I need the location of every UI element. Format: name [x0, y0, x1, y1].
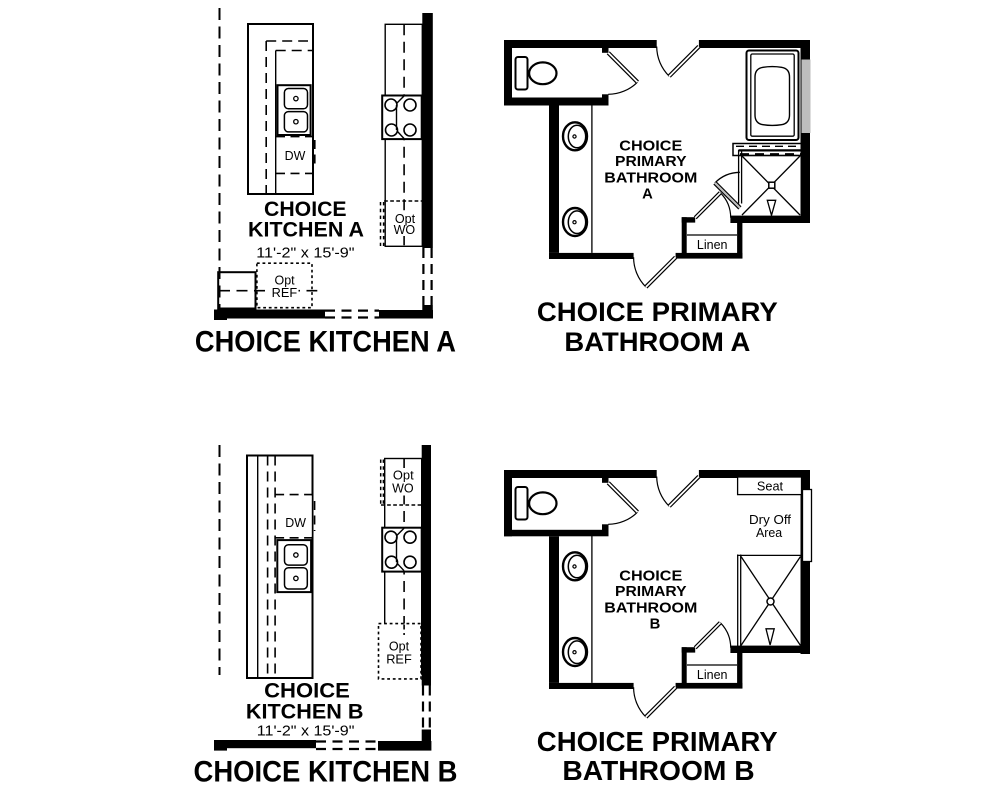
svg-text:CHOICE: CHOICE [619, 139, 682, 155]
svg-text:Seat: Seat [757, 478, 784, 493]
svg-text:DW: DW [285, 148, 306, 163]
svg-text:BATHROOM: BATHROOM [604, 601, 697, 617]
svg-text:A: A [642, 187, 653, 203]
svg-text:BATHROOM: BATHROOM [604, 171, 697, 187]
svg-text:Linen: Linen [697, 237, 728, 252]
svg-text:CHOICE KITCHEN B: CHOICE KITCHEN B [194, 756, 458, 789]
svg-text:WO: WO [394, 222, 416, 237]
svg-text:11'-2" x 15'-9": 11'-2" x 15'-9" [257, 724, 355, 740]
svg-text:11'-2" x 15'-9": 11'-2" x 15'-9" [256, 246, 354, 262]
svg-text:KITCHEN A: KITCHEN A [248, 217, 364, 241]
svg-text:PRIMARY: PRIMARY [615, 154, 687, 170]
svg-text:Area: Area [756, 525, 783, 540]
svg-text:PRIMARY: PRIMARY [615, 584, 687, 600]
svg-text:Linen: Linen [697, 667, 728, 682]
svg-text:CHOICE: CHOICE [619, 569, 682, 585]
svg-text:CHOICE PRIMARY: CHOICE PRIMARY [537, 726, 778, 757]
svg-text:WO: WO [392, 481, 414, 496]
svg-text:B: B [650, 617, 661, 633]
svg-text:DW: DW [285, 515, 306, 530]
svg-text:CHOICE KITCHEN A: CHOICE KITCHEN A [195, 326, 456, 359]
svg-text:KITCHEN B: KITCHEN B [246, 699, 364, 723]
svg-text:REF: REF [272, 285, 298, 300]
svg-text:REF: REF [386, 652, 412, 667]
svg-text:CHOICE PRIMARY: CHOICE PRIMARY [537, 296, 778, 327]
svg-text:BATHROOM B: BATHROOM B [562, 755, 754, 786]
svg-text:BATHROOM A: BATHROOM A [564, 326, 750, 357]
